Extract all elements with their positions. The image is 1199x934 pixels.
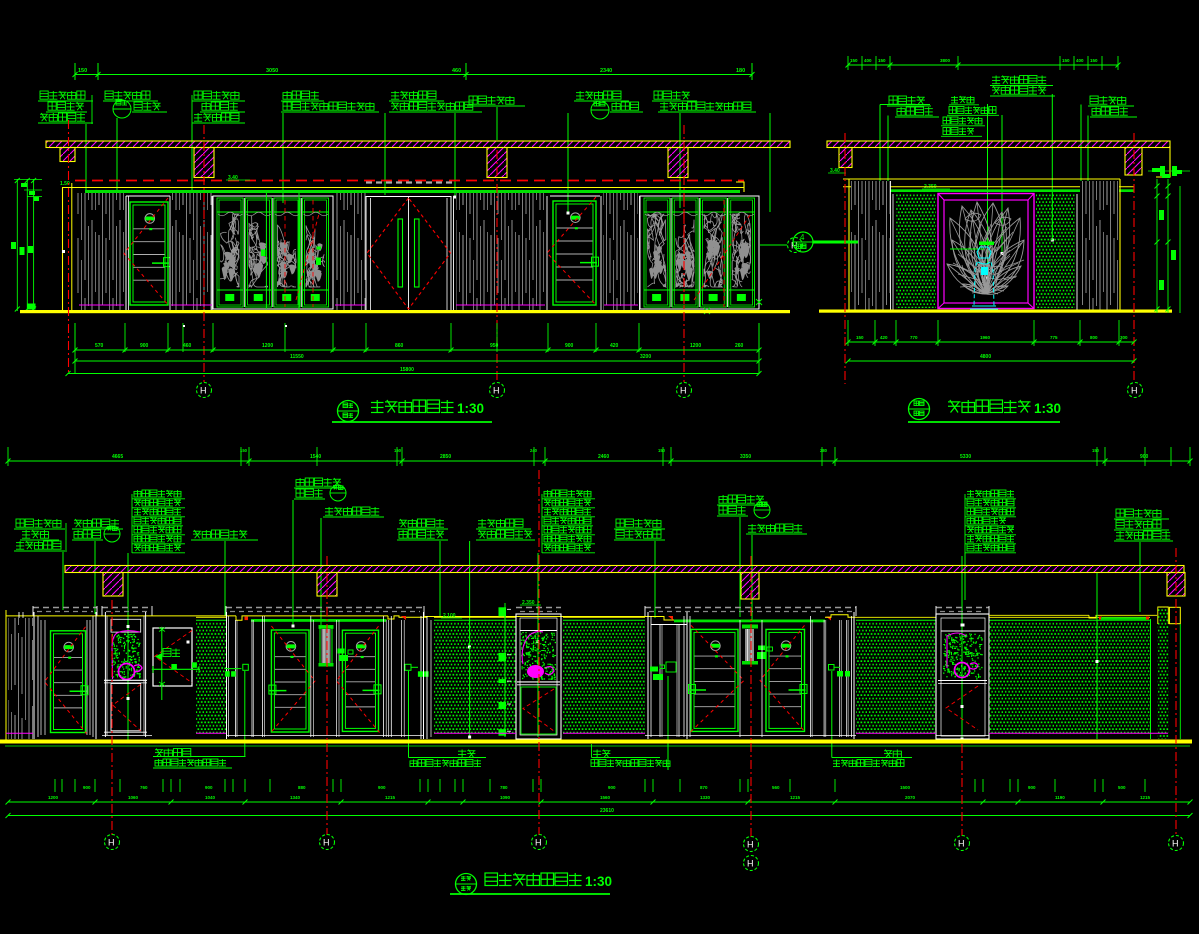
svg-text:400: 400 bbox=[1076, 58, 1084, 63]
svg-text:900: 900 bbox=[83, 785, 91, 790]
svg-text:900: 900 bbox=[1028, 785, 1036, 790]
svg-text:H: H bbox=[1172, 839, 1179, 849]
svg-text:1500: 1500 bbox=[900, 785, 911, 790]
svg-text:780: 780 bbox=[500, 785, 508, 790]
svg-text:860: 860 bbox=[395, 343, 404, 349]
svg-text:775: 775 bbox=[1050, 335, 1058, 340]
svg-text:5330: 5330 bbox=[960, 454, 971, 460]
svg-text:3050: 3050 bbox=[266, 68, 278, 74]
svg-text:1:30: 1:30 bbox=[457, 401, 484, 416]
svg-text:280: 280 bbox=[820, 448, 828, 453]
svg-text:1200: 1200 bbox=[48, 795, 59, 800]
svg-text:150: 150 bbox=[856, 335, 864, 340]
svg-text:H: H bbox=[535, 838, 542, 848]
svg-text:4800: 4800 bbox=[980, 354, 991, 360]
svg-text:900: 900 bbox=[565, 343, 574, 349]
svg-text:500: 500 bbox=[1118, 785, 1126, 790]
svg-text:H: H bbox=[323, 838, 330, 848]
svg-text:H: H bbox=[108, 838, 115, 848]
svg-text:150: 150 bbox=[850, 58, 858, 63]
svg-text:15800: 15800 bbox=[400, 367, 414, 373]
svg-text:150: 150 bbox=[1090, 58, 1098, 63]
svg-text:300: 300 bbox=[1120, 335, 1128, 340]
svg-text:150: 150 bbox=[878, 58, 886, 63]
svg-text:H: H bbox=[680, 386, 687, 396]
svg-text:760: 760 bbox=[140, 785, 148, 790]
svg-text:11550: 11550 bbox=[290, 354, 304, 360]
svg-text:2460: 2460 bbox=[598, 454, 609, 460]
svg-text:H: H bbox=[200, 386, 207, 396]
svg-text:150: 150 bbox=[1062, 58, 1070, 63]
svg-text:23610: 23610 bbox=[600, 808, 614, 814]
svg-text:H: H bbox=[493, 386, 500, 396]
svg-text:2340: 2340 bbox=[600, 68, 612, 74]
svg-text:2070: 2070 bbox=[905, 795, 916, 800]
svg-text:1340: 1340 bbox=[290, 795, 301, 800]
svg-text:H: H bbox=[747, 859, 754, 869]
svg-text:180: 180 bbox=[736, 68, 745, 74]
svg-text:1215: 1215 bbox=[790, 795, 801, 800]
svg-text:1060: 1060 bbox=[128, 795, 139, 800]
svg-text:900: 900 bbox=[205, 785, 213, 790]
svg-text:560: 560 bbox=[772, 785, 780, 790]
svg-text:900: 900 bbox=[608, 785, 616, 790]
svg-text:1330: 1330 bbox=[700, 795, 711, 800]
svg-text:900: 900 bbox=[1140, 454, 1149, 460]
svg-text:3200: 3200 bbox=[640, 354, 651, 360]
svg-text:870: 870 bbox=[700, 785, 708, 790]
svg-text:1200: 1200 bbox=[262, 343, 273, 349]
svg-text:1560: 1560 bbox=[600, 795, 611, 800]
svg-text:150: 150 bbox=[1092, 448, 1100, 453]
svg-text:1190: 1190 bbox=[1055, 795, 1065, 800]
svg-text:1090: 1090 bbox=[500, 795, 511, 800]
svg-text:1:30: 1:30 bbox=[1034, 401, 1061, 416]
svg-text:400: 400 bbox=[864, 58, 872, 63]
svg-text:240: 240 bbox=[530, 448, 538, 453]
svg-text:770: 770 bbox=[910, 335, 918, 340]
svg-text:880: 880 bbox=[298, 785, 306, 790]
svg-text:260: 260 bbox=[735, 343, 744, 349]
svg-text:1040: 1040 bbox=[205, 795, 216, 800]
svg-text:150: 150 bbox=[240, 448, 248, 453]
svg-text:150: 150 bbox=[394, 448, 402, 453]
svg-text:H: H bbox=[747, 840, 754, 850]
svg-text:420: 420 bbox=[610, 343, 619, 349]
svg-text:900: 900 bbox=[140, 343, 149, 349]
svg-text:460: 460 bbox=[452, 68, 461, 74]
svg-text:570: 570 bbox=[95, 343, 104, 349]
svg-text:1:30: 1:30 bbox=[585, 874, 612, 889]
svg-text:150: 150 bbox=[658, 448, 666, 453]
svg-text:420: 420 bbox=[880, 335, 888, 340]
svg-text:4665: 4665 bbox=[112, 454, 123, 460]
svg-text:150: 150 bbox=[78, 68, 87, 74]
svg-text:4: 4 bbox=[800, 233, 805, 242]
svg-text:1215: 1215 bbox=[385, 795, 396, 800]
svg-text:900: 900 bbox=[378, 785, 386, 790]
svg-text:1960: 1960 bbox=[980, 335, 991, 340]
svg-text:1540: 1540 bbox=[310, 454, 321, 460]
svg-text:460: 460 bbox=[183, 343, 192, 349]
svg-text:800: 800 bbox=[1090, 335, 1098, 340]
svg-text:950: 950 bbox=[490, 343, 499, 349]
svg-text:H: H bbox=[1131, 386, 1138, 396]
svg-text:1215: 1215 bbox=[1140, 795, 1151, 800]
svg-text:3350: 3350 bbox=[740, 454, 751, 460]
svg-text:2850: 2850 bbox=[440, 454, 451, 460]
svg-text:3800: 3800 bbox=[940, 58, 951, 63]
svg-text:1200: 1200 bbox=[690, 343, 701, 349]
svg-text:H: H bbox=[958, 839, 965, 849]
